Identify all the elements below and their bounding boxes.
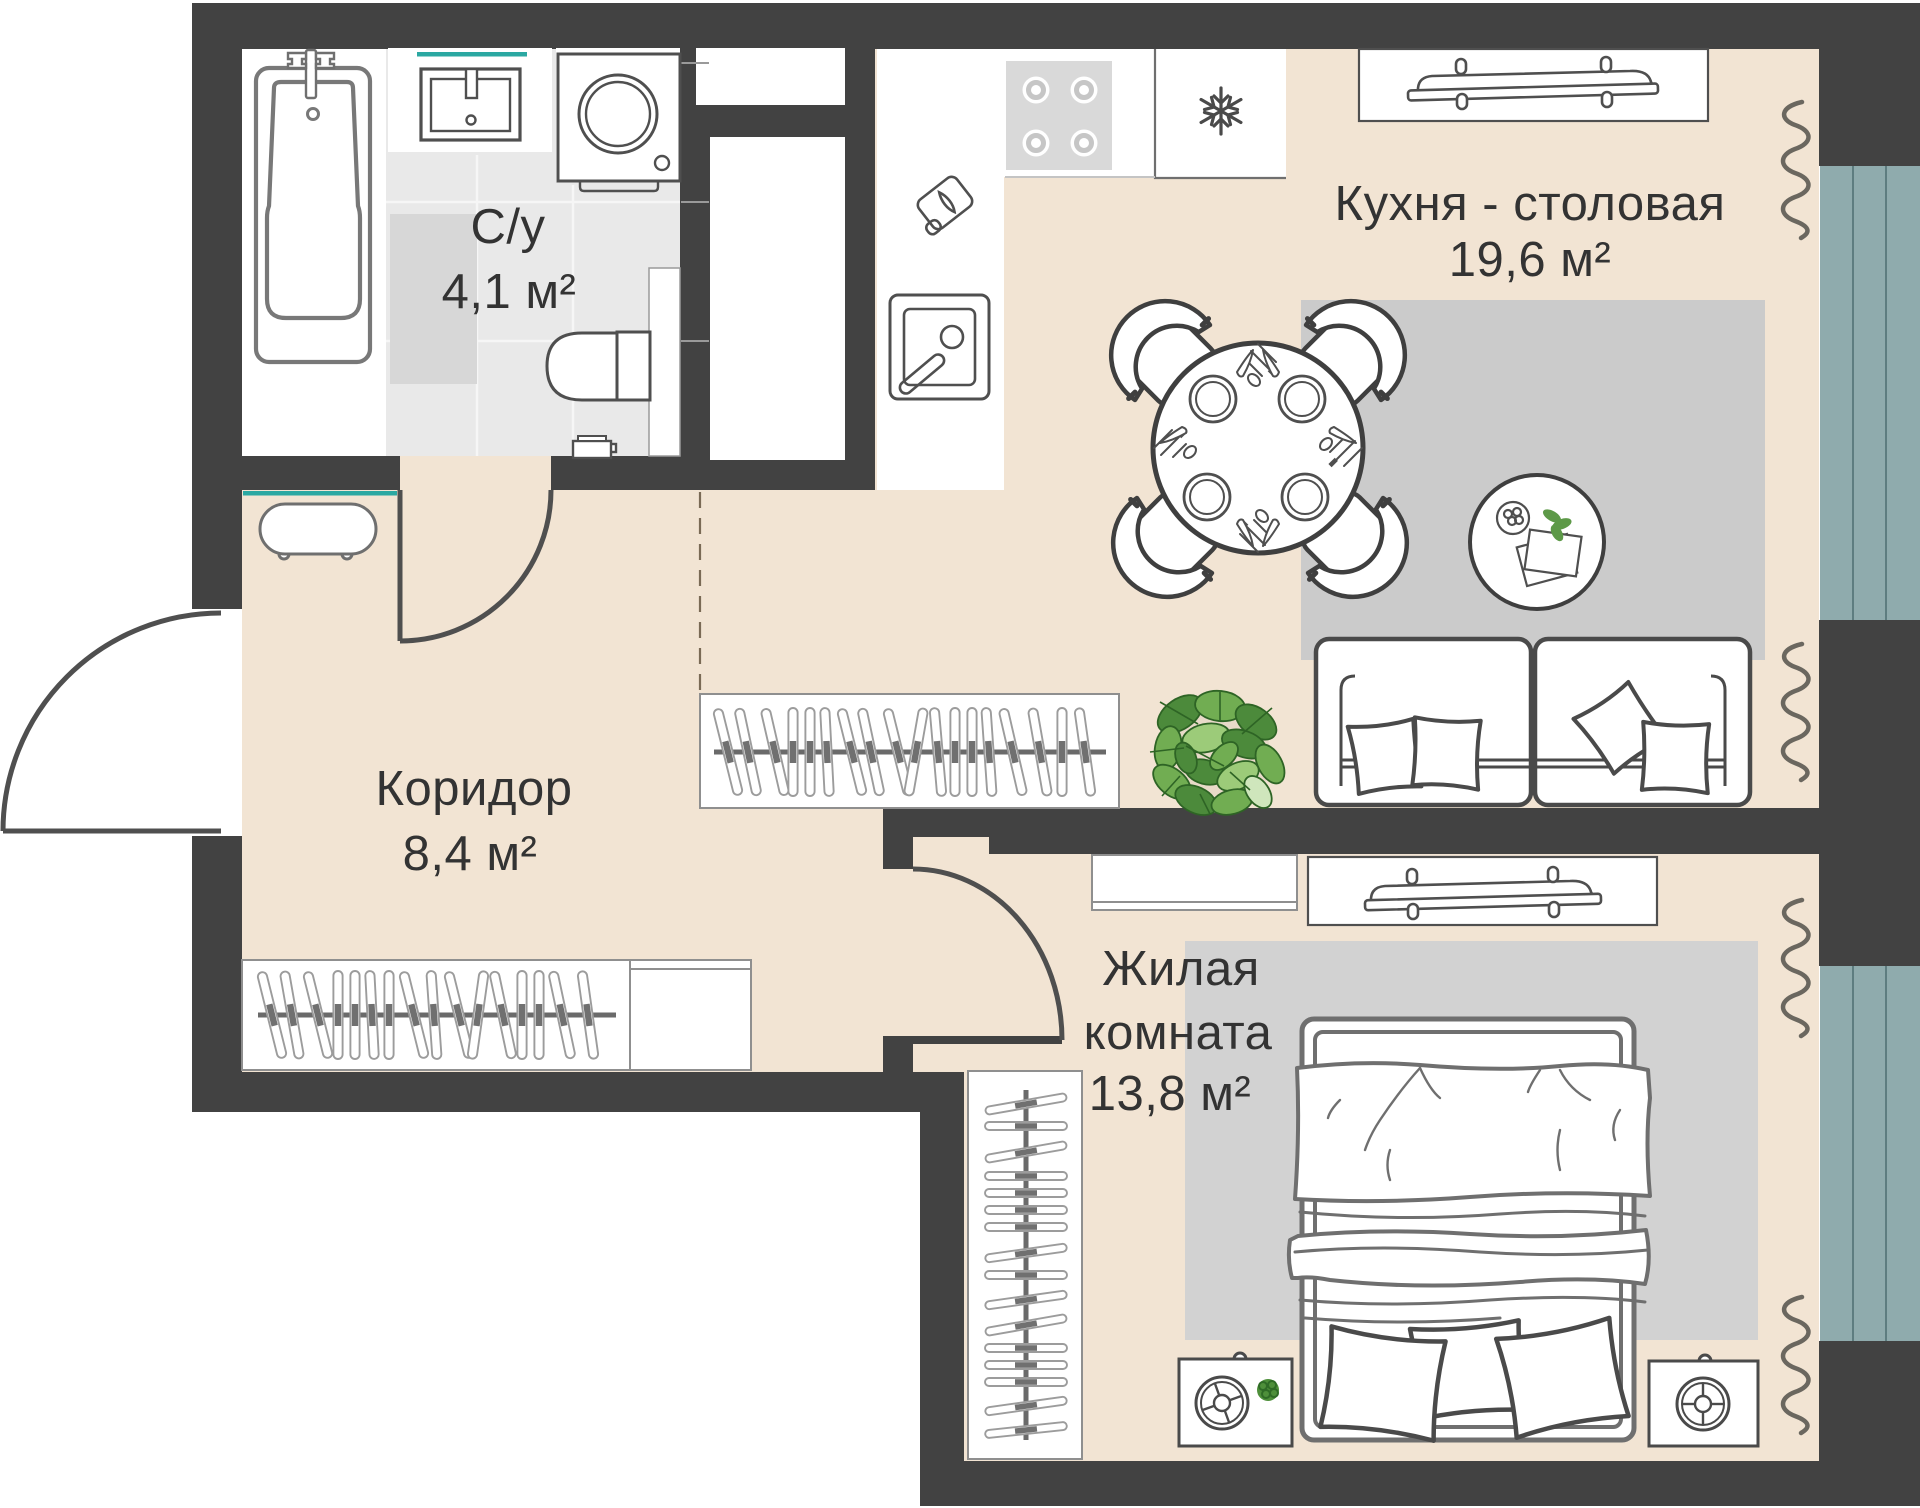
svg-text:Коридор: Коридор [375, 762, 572, 816]
svg-text:13,8 м²: 13,8 м² [1089, 1067, 1252, 1121]
svg-text:С/у: С/у [471, 200, 546, 254]
svg-text:Кухня - столовая: Кухня - столовая [1335, 177, 1726, 231]
svg-text:4,1 м²: 4,1 м² [442, 265, 577, 319]
svg-text:комната: комната [1084, 1006, 1273, 1060]
svg-text:19,6 м²: 19,6 м² [1449, 233, 1612, 287]
svg-text:8,4 м²: 8,4 м² [403, 827, 538, 881]
svg-text:Жилая: Жилая [1102, 942, 1260, 996]
